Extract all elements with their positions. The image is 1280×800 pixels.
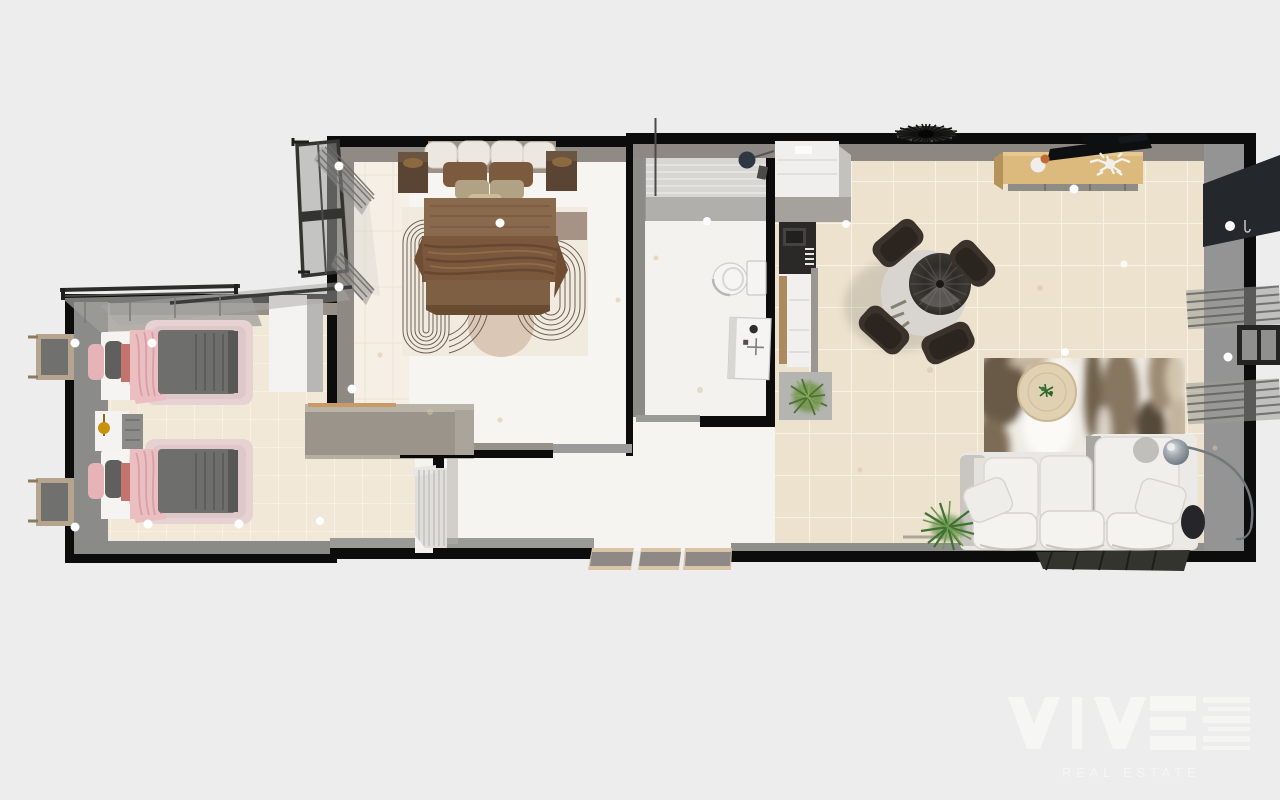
svg-text:REAL ESTATE: REAL ESTATE xyxy=(1062,765,1201,780)
